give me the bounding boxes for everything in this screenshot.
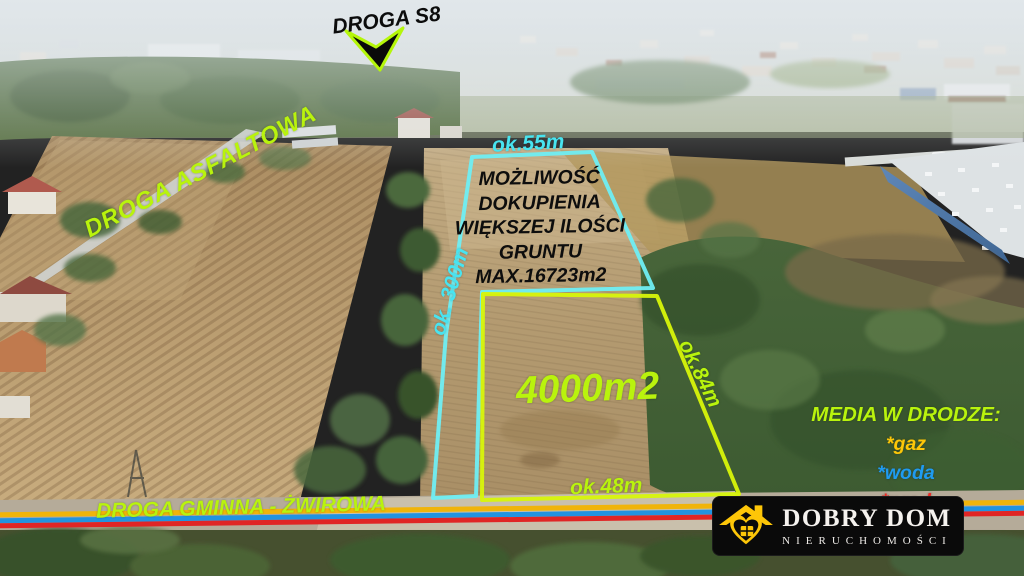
agency-logo: DOBRY DOM NIERUCHOMOŚCI — [713, 497, 963, 555]
media-header: MEDIA W DRODZE: — [806, 403, 1006, 427]
logo-subtitle: NIERUCHOMOŚCI — [782, 535, 952, 547]
media-item-gaz: *gaz — [806, 433, 1006, 456]
logo-title: DOBRY DOM — [782, 505, 951, 533]
top-width-label: ok.55m — [492, 131, 565, 156]
media-item-woda: *woda — [806, 462, 1006, 485]
bottom-width-label: ok.48m — [570, 475, 643, 499]
real-estate-listing-photo: DROGA S8 DROGA ASFALTOWA ok.55m MOŻLIWOŚ… — [0, 0, 1024, 576]
offer-line: WIĘKSZEJ ILOŚCI — [430, 213, 650, 241]
house-heart-icon — [713, 501, 779, 551]
plot-area-label: 4000m2 — [515, 367, 659, 411]
